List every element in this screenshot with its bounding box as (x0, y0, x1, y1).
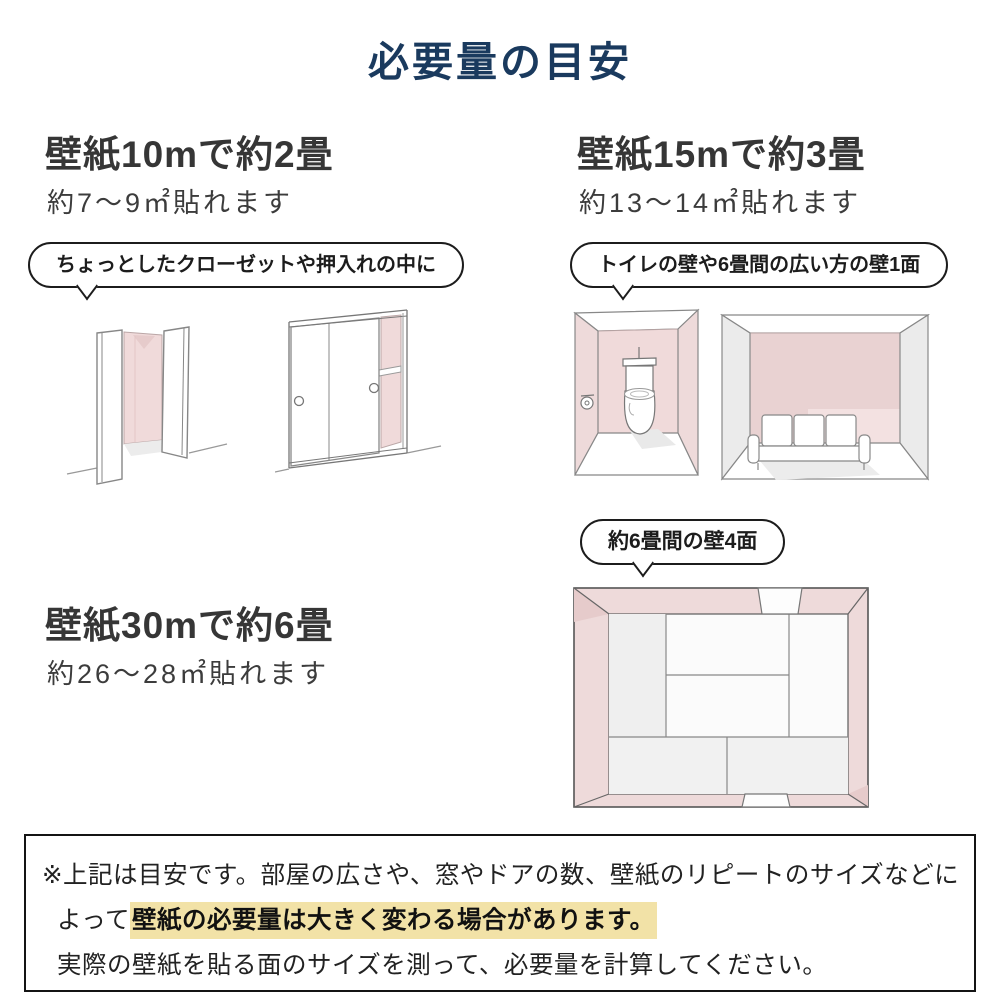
section-15m-bubble-label: トイレの壁や6畳間の広い方の壁1面 (598, 254, 920, 276)
toilet-room-illustration (570, 303, 705, 483)
section-30m-bubble-label: 約6畳間の壁4面 (608, 530, 757, 553)
section-15m-speech-bubble: トイレの壁や6畳間の広い方の壁1面 (570, 242, 948, 288)
note-box: ※上記は目安です。部屋の広さや、窓やドアの数、壁紙のリピートのサイズなどに よっ… (24, 834, 976, 992)
section-10m-speech-bubble: ちょっとしたクローゼットや押入れの中に (28, 242, 464, 288)
section-15m-subtext: 約13〜14㎡貼れます (579, 181, 861, 220)
note-line-2: よって壁紙の必要量は大きく変わる場合があります。 (57, 898, 958, 943)
section-10m-heading: 壁紙10mで約2畳 (45, 124, 334, 178)
note-line-2-highlight: 壁紙の必要量は大きく変わる場合があります。 (130, 902, 657, 939)
note-line-3: 実際の壁紙を貼る面のサイズを測って、必要量を計算してください。 (57, 943, 958, 988)
wallpaper-quantity-guide-page: 必要量の目安 壁紙10mで約2畳 約7〜9㎡貼れます ちょっとしたクローゼットや… (0, 0, 1000, 1000)
section-30m-speech-bubble: 約6畳間の壁4面 (580, 519, 785, 565)
oshiire-illustration (275, 298, 455, 483)
section-30m-heading: 壁紙30mで約6畳 (45, 595, 334, 649)
section-15m-heading: 壁紙15mで約3畳 (577, 124, 866, 178)
closet-illustration (65, 302, 260, 502)
section-10m-subtext: 約7〜9㎡貼れます (47, 181, 293, 220)
note-line-2-prefix: よって (57, 907, 130, 934)
note-line-1: ※上記は目安です。部屋の広さや、窓やドアの数、壁紙のリピートのサイズなどに (42, 853, 958, 898)
tatami-room-illustration (572, 585, 872, 810)
section-30m-subtext: 約26〜28㎡貼れます (47, 652, 329, 691)
section-10m-bubble-label: ちょっとしたクローゼットや押入れの中に (56, 254, 436, 276)
sofa-room-illustration (718, 303, 933, 483)
page-title: 必要量の目安 (0, 28, 1000, 88)
